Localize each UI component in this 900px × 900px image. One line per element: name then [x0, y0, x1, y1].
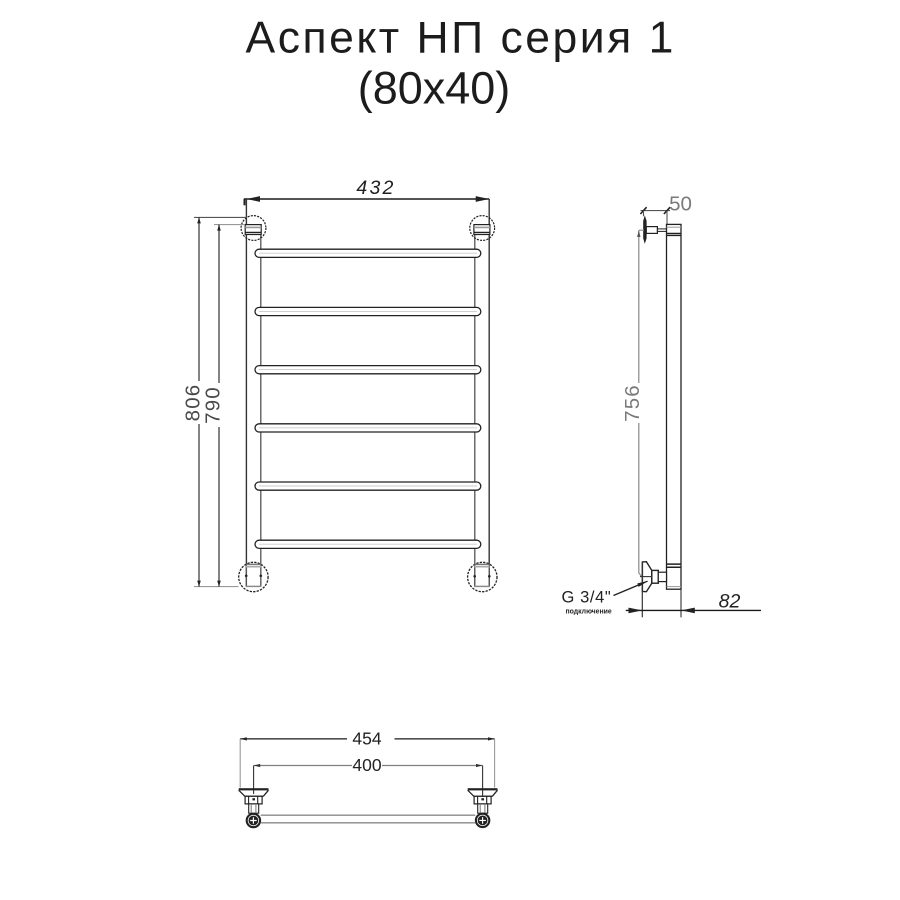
- svg-text:756: 756: [621, 384, 644, 422]
- svg-text:400: 400: [352, 755, 381, 775]
- svg-text:(80x40): (80x40): [358, 63, 511, 114]
- svg-text:Аспект НП серия 1: Аспект НП серия 1: [246, 14, 676, 63]
- svg-text:подключение: подключение: [566, 608, 612, 615]
- svg-text:82: 82: [719, 591, 741, 613]
- svg-text:432: 432: [356, 177, 395, 199]
- svg-text:790: 790: [201, 386, 224, 424]
- svg-text:G 3/4": G 3/4": [562, 589, 612, 607]
- svg-text:454: 454: [352, 728, 381, 748]
- svg-text:50: 50: [669, 193, 692, 216]
